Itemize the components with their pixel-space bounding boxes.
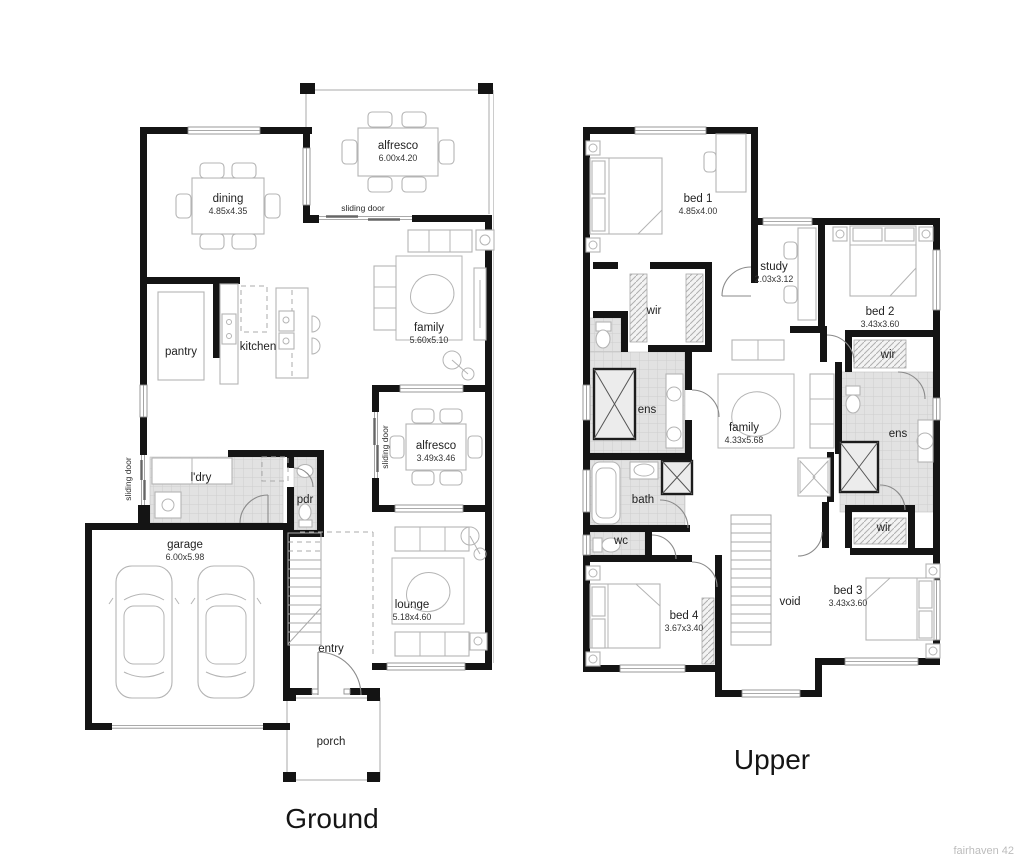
room-label-laundry: l'dry	[191, 472, 212, 484]
pantry-shelving	[158, 292, 204, 380]
garage-door-line	[112, 726, 263, 729]
room-label-entry: entry	[318, 643, 344, 655]
room-label-kitchen: kitchen	[240, 341, 276, 353]
sliding-door-rear-glyph	[319, 217, 412, 220]
room-label-porch: porch	[317, 736, 346, 748]
garage-car-1	[109, 566, 179, 698]
bed2-furniture	[833, 226, 933, 296]
bed4-furniture	[586, 566, 660, 666]
room-dims-lounge: 5.18x4.60	[393, 612, 432, 622]
room-label-family-upper: family	[729, 422, 759, 434]
alfresco-rear-table	[342, 112, 454, 192]
garage-car-2	[191, 566, 261, 698]
room-label-alfresco-rear: alfresco	[378, 140, 418, 152]
room-dims-family-ground: 5.60x5.10	[410, 335, 449, 345]
bed3-furniture	[866, 564, 940, 658]
room-label-dining: dining	[213, 193, 244, 205]
room-dims-garage: 6.00x5.98	[166, 552, 205, 562]
room-label-wir-bed2: wir	[880, 349, 896, 361]
room-dims-bed1: 4.85x4.00	[679, 206, 718, 216]
sliding-door-alfresco-glyph	[375, 412, 378, 478]
ground-floor-title: Ground	[285, 803, 378, 834]
room-dims-dining: 4.85x4.35	[209, 206, 248, 216]
fridge-space-dashed	[241, 286, 267, 332]
wir-bed1-robe-left	[630, 274, 647, 342]
upper-stairs	[731, 515, 771, 645]
watermark-plan-name: fairhaven 42	[953, 845, 1014, 857]
bed1-furniture	[586, 134, 746, 252]
upper-floor-plan: bed 1 4.85x4.00 study 2.03x3.12 bed 2 3.…	[583, 127, 940, 697]
floor-plan-drawing: alfresco 6.00x4.20 dining 4.85x4.35 slid…	[0, 0, 1024, 862]
ground-floor-plan: alfresco 6.00x4.20 dining 4.85x4.35 slid…	[85, 83, 494, 782]
room-dims-family-upper: 4.33x5.68	[725, 435, 764, 445]
room-dims-bed2: 3.43x3.60	[861, 319, 900, 329]
room-dims-alfresco-side: 3.49x3.46	[417, 453, 456, 463]
room-label-family-ground: family	[414, 322, 444, 334]
label-sliding-door-rear: sliding door	[341, 203, 385, 213]
room-label-wir-bed3: wir	[876, 522, 892, 534]
room-label-void: void	[779, 596, 800, 608]
room-label-ens-bed2: ens	[889, 428, 908, 440]
room-dims-alfresco-rear: 6.00x4.20	[379, 153, 418, 163]
bed4-robe	[702, 598, 714, 664]
ground-stairs	[288, 533, 321, 645]
label-sliding-door-left: sliding door	[123, 457, 133, 501]
room-label-wir-bed1: wir	[646, 305, 662, 317]
room-label-wc: wc	[613, 535, 628, 547]
room-label-garage: garage	[167, 539, 203, 551]
room-dims-bed4: 3.67x3.40	[665, 623, 704, 633]
room-label-ens-main: ens	[638, 404, 657, 416]
sliding-door-left-glyph	[142, 455, 145, 505]
room-label-study: study	[760, 261, 788, 273]
lounge-sofa-set	[392, 527, 487, 656]
upper-floor-title: Upper	[734, 744, 810, 775]
room-label-powder: pdr	[297, 494, 314, 506]
wir-bed1-robe-right	[686, 274, 703, 342]
room-label-bed2: bed 2	[866, 306, 895, 318]
room-dims-study: 2.03x3.12	[755, 274, 794, 284]
floor-plan-page: alfresco 6.00x4.20 dining 4.85x4.35 slid…	[0, 0, 1024, 862]
label-sliding-door-alfresco: sliding door	[380, 425, 390, 469]
room-label-bed3: bed 3	[834, 585, 863, 597]
room-label-bed4: bed 4	[670, 610, 699, 622]
room-dims-bed3: 3.43x3.60	[829, 598, 868, 608]
room-label-alfresco-side: alfresco	[416, 440, 456, 452]
linen-cupboard	[798, 458, 830, 496]
room-label-bath: bath	[632, 494, 654, 506]
family-sofa-set	[374, 230, 494, 380]
room-label-lounge: lounge	[395, 599, 430, 611]
kitchen-island	[276, 288, 320, 378]
room-label-bed1: bed 1	[684, 193, 713, 205]
room-label-pantry: pantry	[165, 346, 197, 358]
kitchen-bench	[220, 284, 238, 384]
